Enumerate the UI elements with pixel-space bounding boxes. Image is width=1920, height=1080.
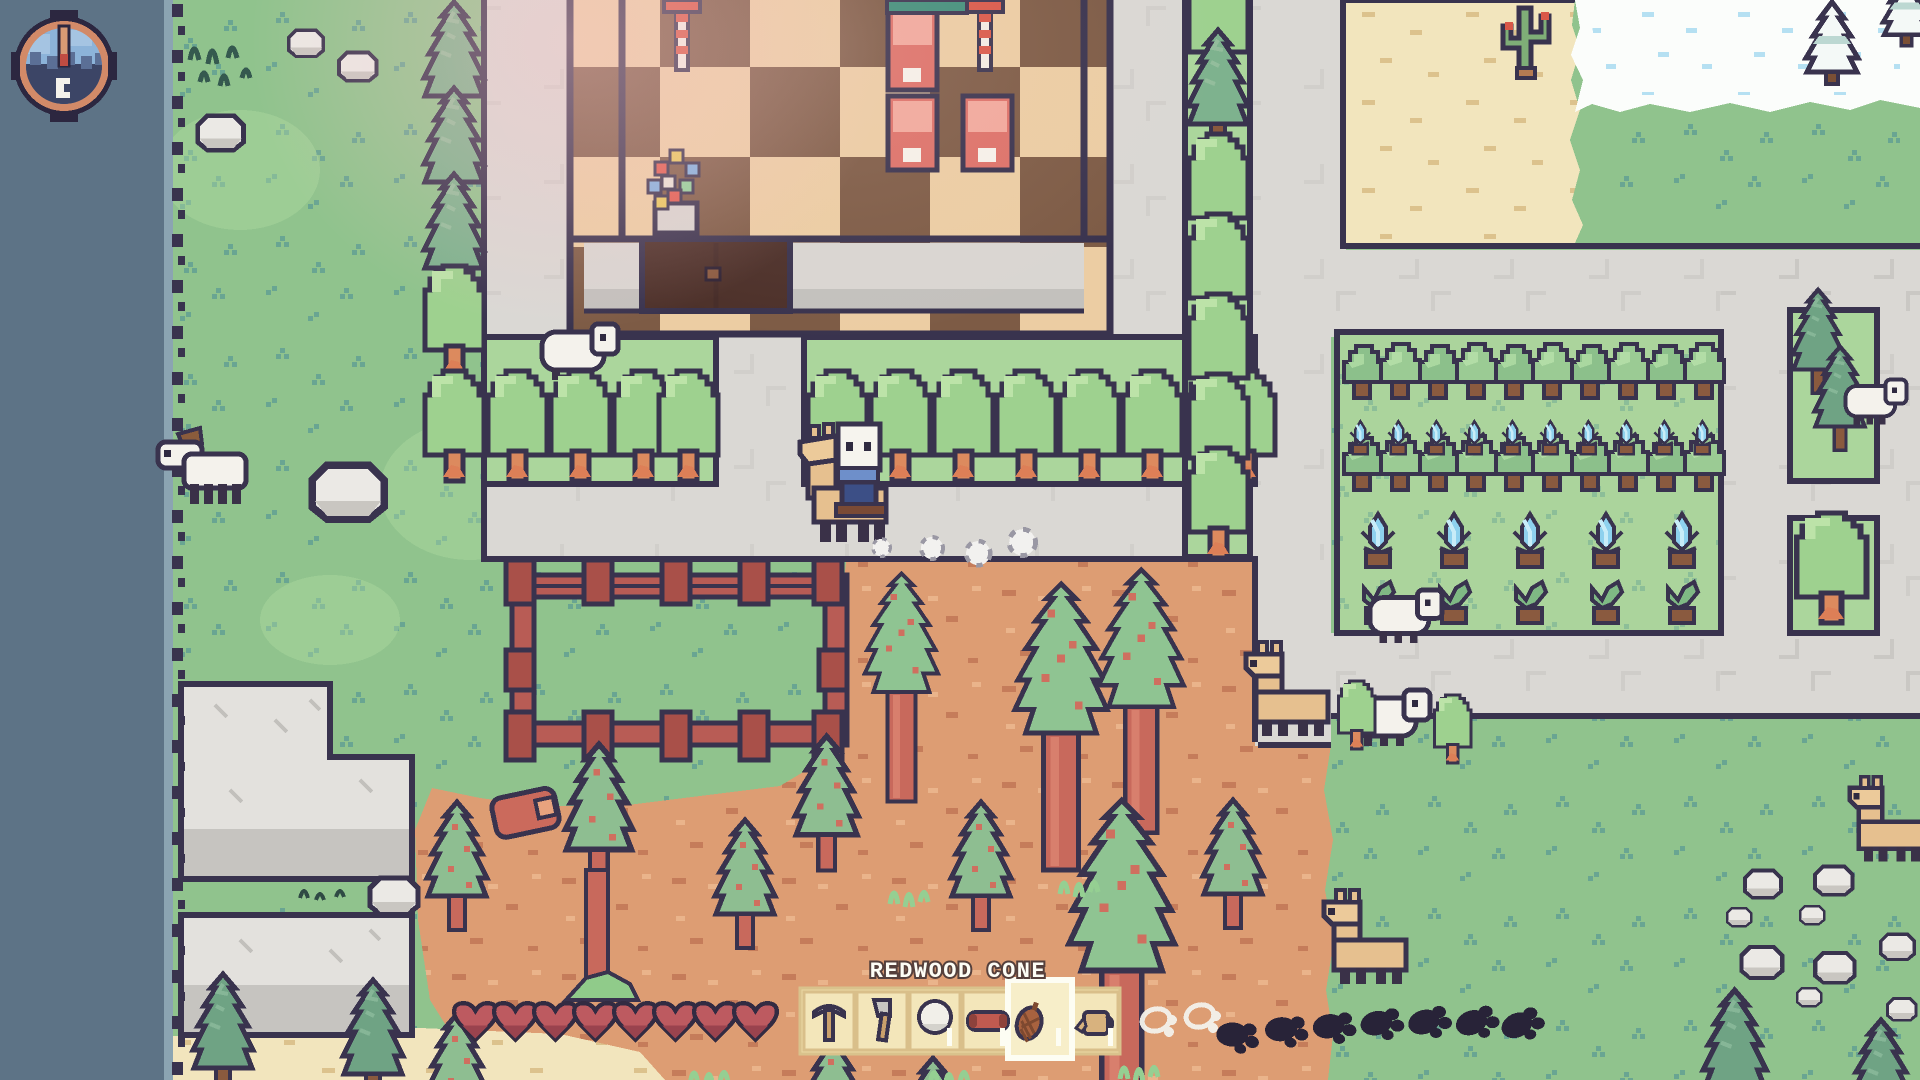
svg-text:REDWOOD CONE: REDWOOD CONE: [870, 959, 1046, 984]
